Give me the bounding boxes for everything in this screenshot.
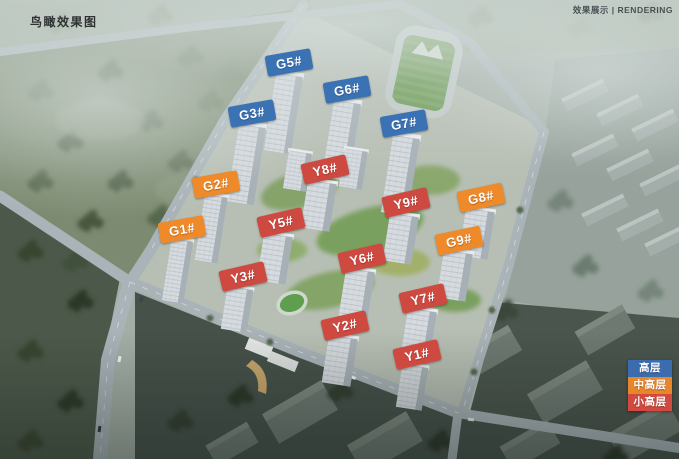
scene-background	[0, 0, 679, 459]
legend-item-midhighrise: 中高层	[628, 377, 672, 394]
aerial-rendering: 鸟瞰效果图 效果展示 | RENDERING G5# G6# G7# G3# G…	[0, 0, 679, 459]
legend-item-smallhighrise: 小高层	[628, 394, 672, 411]
legend-item-highrise: 高层	[628, 360, 672, 377]
page-title: 鸟瞰效果图	[30, 13, 98, 30]
rendering-note: 效果展示 | RENDERING	[573, 4, 673, 16]
legend: 高层 中高层 小高层	[628, 360, 672, 411]
